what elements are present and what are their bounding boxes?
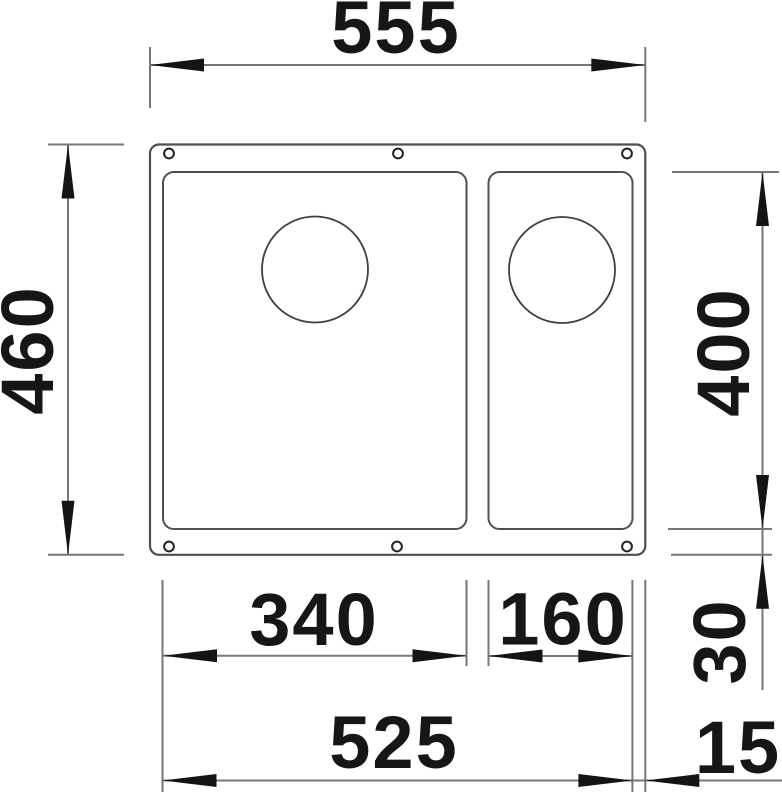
- svg-text:460: 460: [0, 285, 69, 414]
- svg-text:15: 15: [695, 706, 781, 789]
- svg-text:555: 555: [331, 0, 460, 69]
- svg-text:340: 340: [249, 578, 378, 661]
- svg-text:160: 160: [498, 578, 627, 661]
- svg-text:30: 30: [678, 598, 761, 684]
- svg-text:400: 400: [682, 287, 765, 416]
- svg-text:525: 525: [329, 701, 458, 784]
